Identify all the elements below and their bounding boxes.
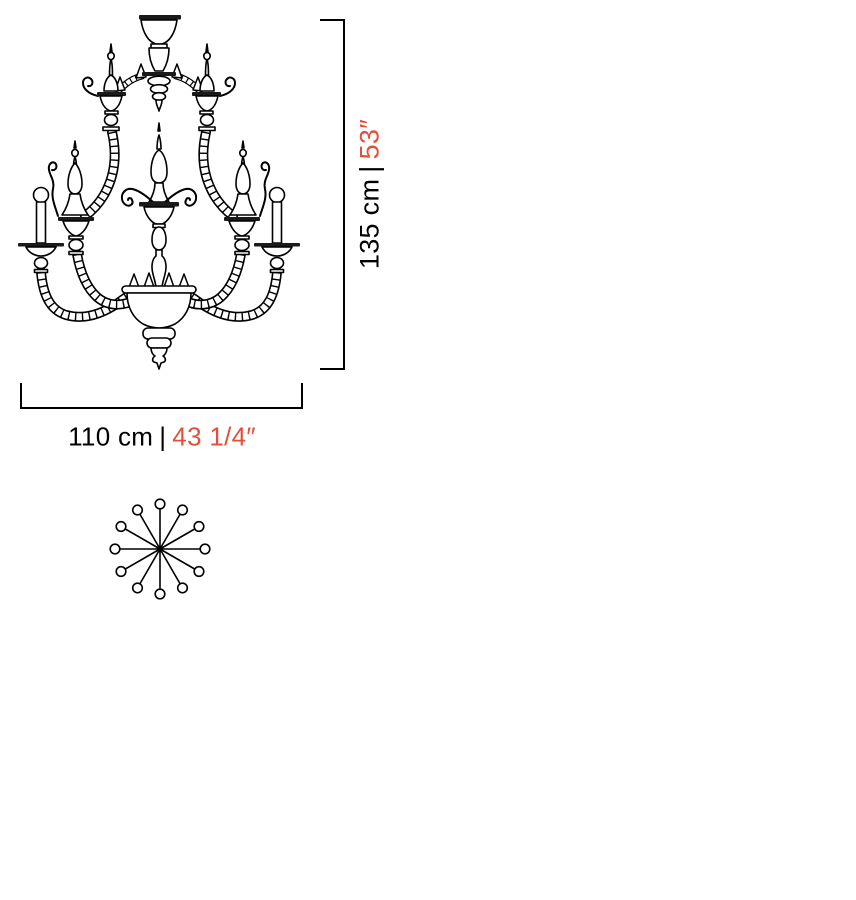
top-view-hub	[157, 546, 163, 552]
top-view-light	[116, 567, 126, 577]
chandelier-left-half	[18, 44, 155, 317]
top-view-light	[133, 505, 143, 515]
top-view-light	[178, 505, 188, 515]
dimension-separator: |	[355, 159, 385, 178]
width-imperial-value: 43 1/4″	[172, 422, 256, 452]
height-dimension-bracket	[320, 19, 345, 370]
top-view-light	[194, 522, 204, 532]
canopy	[139, 15, 181, 111]
top-view-light	[110, 544, 120, 554]
top-view-light	[194, 567, 204, 577]
height-dimension-label: 135 cm|53″	[355, 119, 386, 269]
top-view-light	[155, 499, 165, 509]
top-view-light	[133, 583, 143, 593]
width-dimension-label: 110 cm|43 1/4″	[68, 422, 256, 453]
dimension-separator: |	[153, 422, 172, 452]
width-metric-value: 110 cm	[68, 422, 153, 452]
height-metric-value: 135 cm	[355, 179, 385, 269]
bobeche-spire-assembly	[49, 141, 94, 255]
top-view-light	[155, 589, 165, 599]
bottom-finial	[151, 348, 167, 369]
height-imperial-value: 53″	[355, 119, 385, 160]
central-stem	[152, 250, 166, 289]
width-dimension-bracket	[20, 383, 303, 409]
chandelier-top-view-drawing	[98, 487, 222, 611]
top-view-light	[116, 522, 126, 532]
chandelier-central-column	[122, 15, 196, 369]
chandelier-right-half	[163, 44, 300, 317]
candle-assembly	[18, 188, 64, 273]
central-spire	[149, 123, 169, 202]
upper-scroll-icon	[83, 78, 98, 96]
segmented-column	[85, 132, 115, 216]
top-view-light	[178, 583, 188, 593]
top-view-light	[200, 544, 210, 554]
technical-drawing-page: 135 cm|53″ 110 cm|43 1/4″	[0, 0, 856, 900]
curled-stem-icon	[49, 162, 58, 216]
chandelier-front-view-drawing	[0, 0, 345, 382]
bottom-bowl	[122, 286, 196, 369]
upper-arm	[115, 64, 146, 91]
